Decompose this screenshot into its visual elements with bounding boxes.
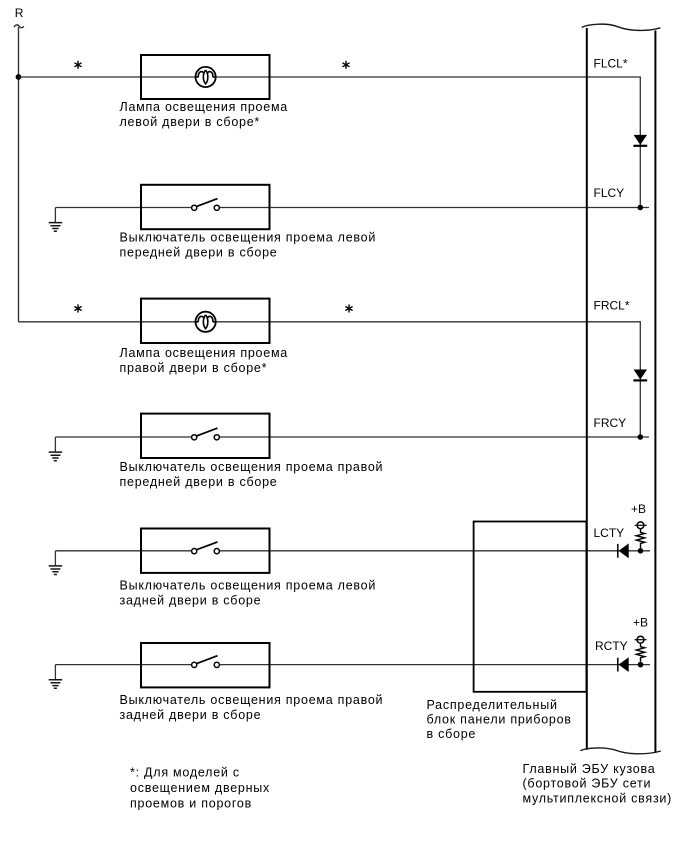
svg-text:*: Для моделей с: *: Для моделей с <box>130 765 240 779</box>
svg-text:освещением дверных: освещением дверных <box>130 781 270 795</box>
svg-text:левой двери в сборе*: левой двери в сборе* <box>120 115 261 129</box>
svg-text:FRCY: FRCY <box>594 416 627 430</box>
svg-text:передней двери в сборе: передней двери в сборе <box>120 475 278 489</box>
svg-text:блок панели приборов: блок панели приборов <box>427 713 572 727</box>
svg-text:Выключатель освещения проема п: Выключатель освещения проема правой <box>120 460 384 474</box>
svg-text:Лампа освещения проема: Лампа освещения проема <box>120 100 289 114</box>
svg-text:передней двери в сборе: передней двери в сборе <box>120 245 278 259</box>
svg-text:R: R <box>15 6 24 20</box>
svg-text:FRCL*: FRCL* <box>594 299 630 313</box>
svg-text:Выключатель освещения проема л: Выключатель освещения проема левой <box>120 230 377 244</box>
svg-text:Лампа освещения проема: Лампа освещения проема <box>120 346 289 360</box>
svg-text:(бортовой ЭБУ сети: (бортовой ЭБУ сети <box>523 777 652 791</box>
svg-text:+B: +B <box>633 616 648 630</box>
svg-text:+B: +B <box>631 502 646 516</box>
svg-text:в сборе: в сборе <box>427 727 477 741</box>
svg-text:Главный ЭБУ кузова: Главный ЭБУ кузова <box>523 762 656 776</box>
svg-text:FLCL*: FLCL* <box>594 56 628 70</box>
svg-text:задней двери в сборе: задней двери в сборе <box>120 593 262 607</box>
svg-text:задней двери в сборе: задней двери в сборе <box>120 708 262 722</box>
svg-text:Выключатель освещения проема п: Выключатель освещения проема правой <box>120 693 384 707</box>
svg-text:правой двери в сборе*: правой двери в сборе* <box>120 361 268 375</box>
svg-text:LCTY: LCTY <box>594 526 625 540</box>
svg-text:RCTY: RCTY <box>595 639 628 653</box>
svg-text:FLCY: FLCY <box>594 186 625 200</box>
svg-text:мультиплексной связи): мультиплексной связи) <box>523 791 673 805</box>
svg-text:Выключатель освещения проема л: Выключатель освещения проема левой <box>120 578 377 592</box>
svg-text:Распределительный: Распределительный <box>427 698 558 712</box>
svg-text:проемов и порогов: проемов и порогов <box>130 797 252 811</box>
